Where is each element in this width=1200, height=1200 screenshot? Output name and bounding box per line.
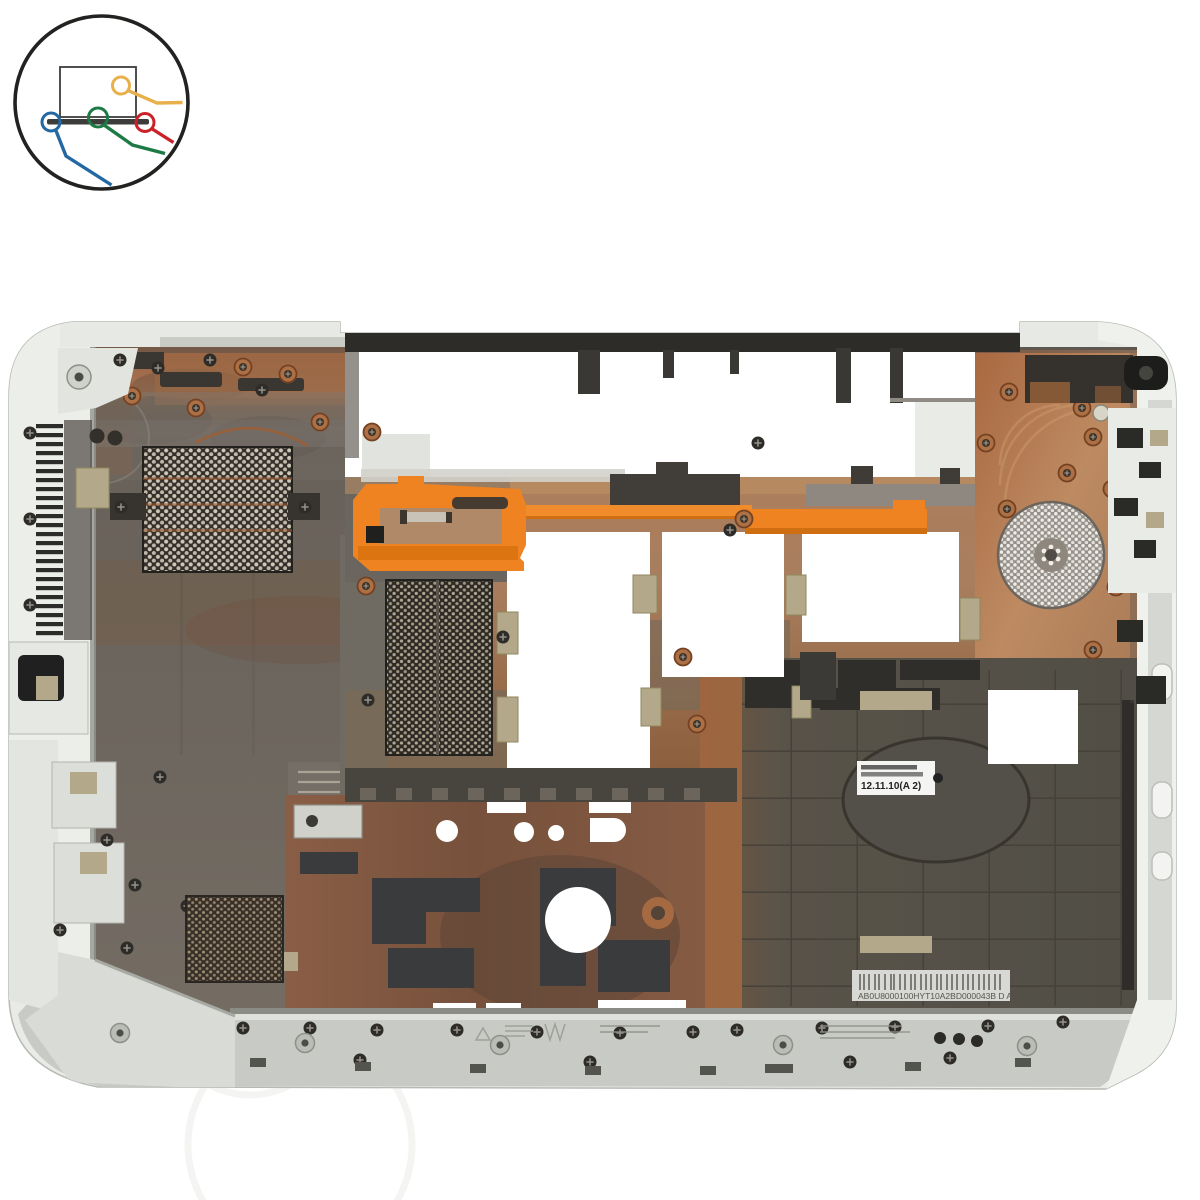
svg-text:AB0U8000100HYT10A2BD000043B D: AB0U8000100HYT10A2BD000043B D A — [858, 991, 1012, 1001]
svg-text:12.11.10(A 2): 12.11.10(A 2) — [861, 781, 921, 792]
